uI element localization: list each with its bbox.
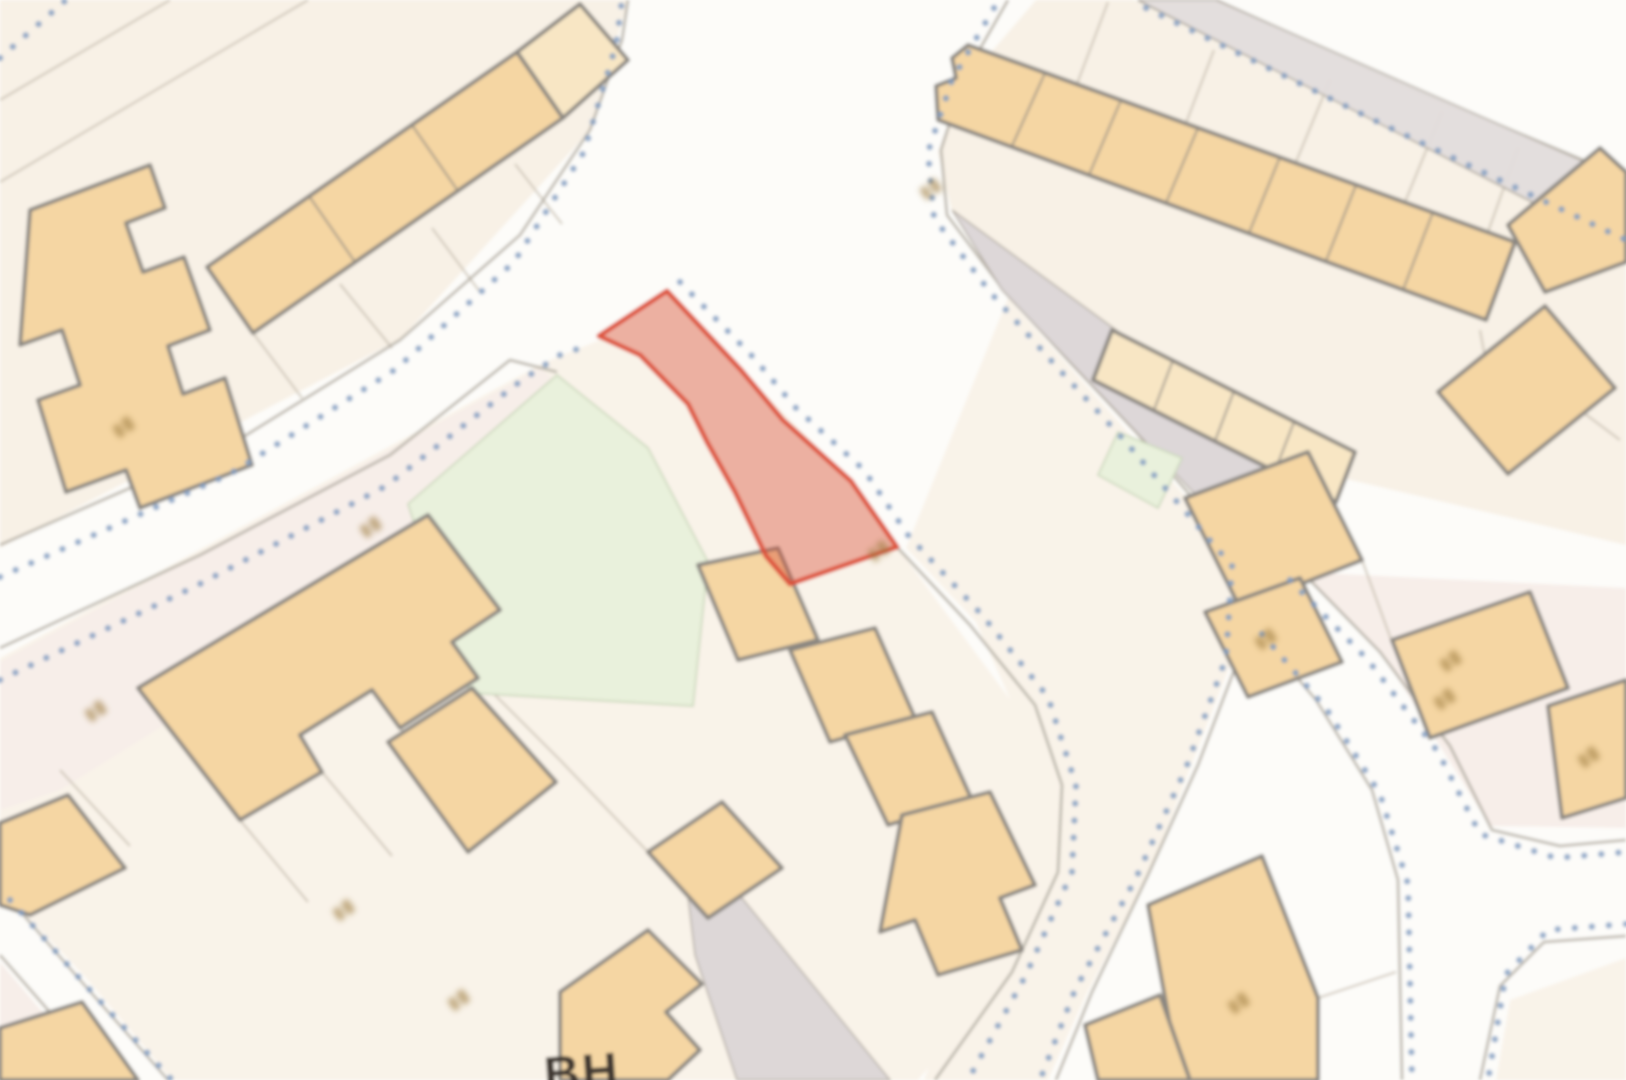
map-canvas: BH — [0, 0, 1626, 1080]
map-layers: BH — [0, 0, 1626, 1080]
building-east-edge — [1548, 680, 1626, 818]
map-viewport: BH — [0, 0, 1626, 1080]
map-label-bh: BH — [542, 1042, 622, 1080]
